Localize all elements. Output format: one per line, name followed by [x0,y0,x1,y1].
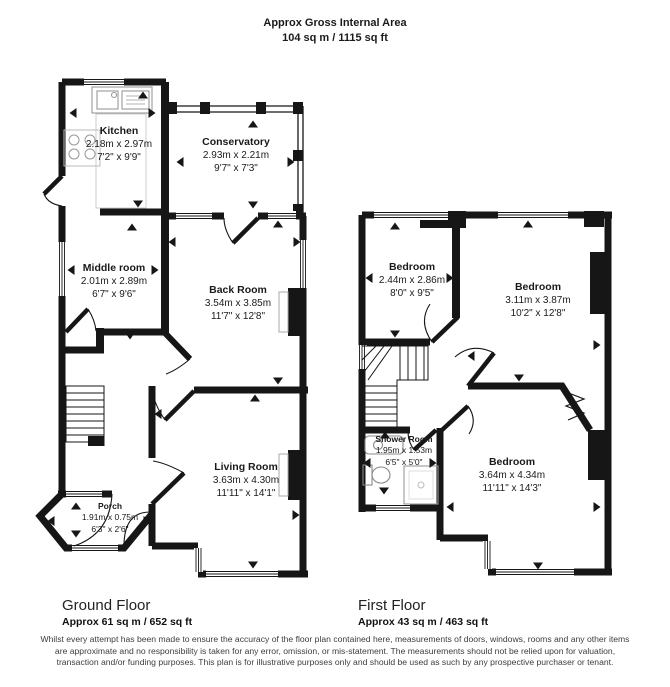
measure-arrow-icon [155,409,162,419]
floorplan-page: { "header": { "title": "Approx Gross Int… [0,0,670,687]
measure-arrow-icon [152,265,159,275]
measure-arrow-icon [273,221,283,228]
measure-arrow-icon [68,265,75,275]
room-label-bedroom-1: Bedroom 2.44m x 2.86m 8'0" x 9'5" [379,260,445,301]
room-label-back-room: Back Room 3.54m x 3.85m 11'7" x 12'8" [205,283,271,324]
room-label-shower-room: Shower Room 1.95m x 1.53m 6'5" x 5'0" [375,434,432,468]
first-floor-caption: First Floor [358,597,426,614]
ground-floor-area: Approx 61 sq m / 652 sq ft [62,616,192,628]
room-label-living-room: Living Room 3.63m x 4.30m 11'11" x 14'1" [213,460,279,501]
hall-backroom-diagonal-wall [165,333,190,359]
measure-arrow-icon [248,121,258,128]
measure-arrow-icon [125,333,135,340]
room-label-bedroom-2: Bedroom 3.11m x 3.87m 10'2" x 12'8" [505,280,570,321]
measure-arrow-icon [248,202,258,209]
hearth-outline [279,292,288,496]
measure-arrow-icon [390,223,400,230]
measure-arrow-icon [71,531,81,538]
measure-arrow-icon [248,562,258,569]
floorplan-svg [0,0,670,687]
measure-arrow-icon [594,340,601,350]
measure-arrow-icon [71,503,81,510]
header-subtitle: 104 sq m / 1115 sq ft [0,31,670,46]
room-label-kitchen: Kitchen 2.18m x 2.97m 7'2" x 9'9" [86,124,152,165]
first-stairs [362,346,428,428]
measure-arrow-icon [390,331,400,338]
measure-arrow-icon [273,378,283,385]
gross-internal-area-header: Approx Gross Internal Area 104 sq m / 11… [0,16,670,46]
shower-tray-icon [404,466,438,504]
measure-arrow-icon [138,92,148,99]
measure-arrow-icon [177,157,184,167]
measure-arrow-icon [514,375,524,382]
first-floor-area: Approx 43 sq m / 463 sq ft [358,616,488,628]
measure-arrow-icon [379,488,389,495]
measure-arrow-icon [70,108,77,118]
room-label-conservatory: Conservatory 2.93m x 2.21m 9'7" x 7'3" [202,135,270,176]
measure-arrow-icon [293,510,300,520]
kitchen-sink-icon [92,87,152,113]
header-title: Approx Gross Internal Area [0,16,670,31]
measure-arrow-icon [127,224,137,231]
room-label-middle-room: Middle room 2.01m x 2.89m 6'7" x 9'6" [81,261,147,302]
room-label-porch: Porch 1.91m x 0.75m 6'3" x 2'6" [82,501,138,535]
first-wall-blocks [420,211,608,480]
ground-floor-caption: Ground Floor [62,597,150,614]
measure-arrow-icon [523,221,533,228]
measure-arrow-icon [366,273,373,283]
measure-arrow-icon [250,395,260,402]
measure-arrow-icon [594,502,601,512]
room-label-bedroom-3: Bedroom 3.64m x 4.34m 11'11" x 14'3" [479,455,545,496]
measure-arrow-icon [447,502,454,512]
stair-newel [88,436,104,446]
measure-arrow-icon [169,237,176,247]
measure-arrow-icon [468,351,475,361]
measure-arrow-icon [133,201,143,208]
disclaimer-text: Whilst every attempt has been made to en… [35,634,635,669]
ground-divider-wall [100,82,165,352]
